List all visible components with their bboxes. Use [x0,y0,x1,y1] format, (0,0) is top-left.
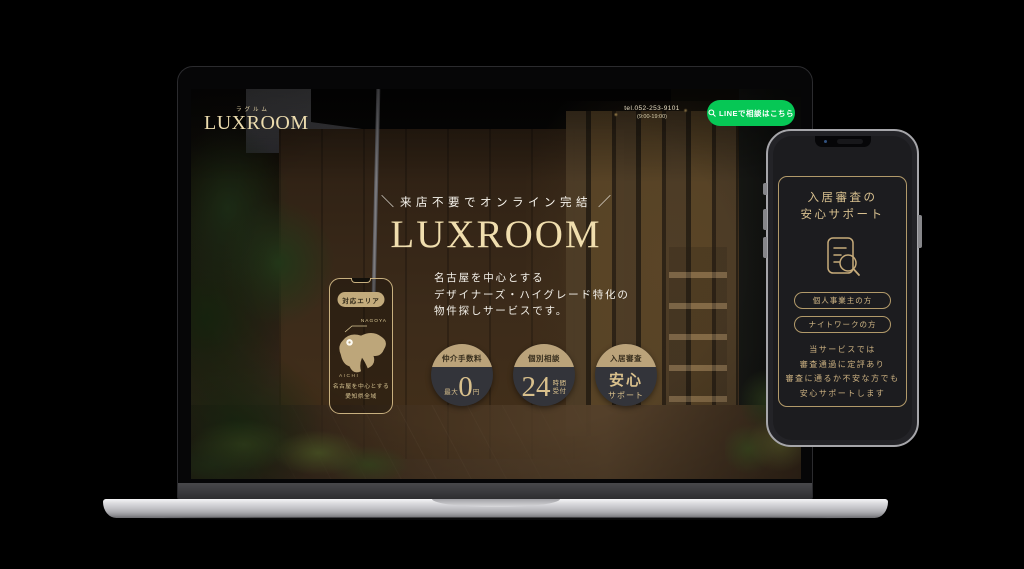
phone-screen: 入居審査の 安心サポート 個人事業主の方 ナイトワークの方 当サービスでは 審査… [773,136,912,440]
tel-hours: (9:00-19:00) [617,113,687,121]
screening-note: 当サービスでは 審査通過に定評あり 審査に通るか不安な方でも 安心サポートします [786,343,900,401]
aichi-map: NAGOYA [330,319,392,379]
area-caption-line: 愛知県全域 [330,393,392,403]
area-caption-line: 名古屋を中心とする [330,383,392,393]
site-logo[interactable]: ラグルム LUXROOM [204,105,302,134]
desc-line: デザイナーズ・ハイグレード特化の [434,288,630,305]
feature-sub: サポート [608,390,644,401]
desc-line: 物件探しサービスです。 [434,304,630,321]
feature-post: 円 [473,386,480,396]
aichi-label: AICHI [339,374,359,379]
phone-volume-up [763,209,767,230]
slash-right: ／ [598,194,611,209]
note-line: 安心サポートします [786,387,900,402]
website-viewport: ラグルム LUXROOM tel.052-253-9101 (9:00-19:0… [191,89,801,479]
screening-title-line: 安心サポート [801,207,885,224]
feature-big: 24 [522,372,551,402]
tel-block[interactable]: tel.052-253-9101 (9:00-19:00) [617,104,687,121]
logo-wordmark: LUXROOM [204,113,302,134]
sole-proprietor-button[interactable]: 個人事業主の方 [794,292,891,309]
laptop-screen: ラグルム LUXROOM tel.052-253-9101 (9:00-19:0… [177,66,813,500]
laptop-hinge [178,483,812,499]
desc-line: 名古屋を中心とする [434,271,630,288]
phone-power-button [918,215,922,248]
area-caption: 名古屋を中心とする 愛知県全域 [330,383,392,402]
phone-notch [815,136,871,147]
mini-phone-notch [351,278,371,283]
note-line: 当サービスでは [786,343,900,358]
hero-title: LUXROOM [191,215,801,255]
feature-cap: 個別相談 [513,344,575,367]
laptop-base [103,499,888,518]
slash-left: ＼ [381,194,394,209]
feature-screening: 入居審査 安心 サポート [595,344,657,406]
phone-mute-switch [763,183,767,195]
feature-stack-bottom: 受付 [553,388,567,396]
service-area-phone-illustration: 対応エリア NAGOYA AICHI 名古屋を中心とする 愛知県全域 [329,278,393,414]
area-badge: 対応エリア [338,292,385,307]
feature-cap: 入居審査 [595,344,657,367]
camera-icon [824,140,828,144]
hero-catchcopy: ＼来店不要でオンライン完結／ [191,191,801,210]
device-mockup-scene: ラグルム LUXROOM tel.052-253-9101 (9:00-19:0… [0,0,1024,569]
feature-cap: 仲介手数料 [431,344,493,367]
aichi-map-shape [333,328,391,376]
feature-pre: 最大 [444,386,458,396]
feature-badges: 仲介手数料 最大0円 個別相談 24 時間 受付 [431,344,657,406]
phone-volume-down [763,237,767,258]
line-consult-button[interactable]: LINEで相談はこちら [707,100,795,126]
feature-stack-top: 時間 [553,380,567,388]
hero-description: 名古屋を中心とする デザイナーズ・ハイグレード特化の 物件探しサービスです。 [434,271,630,321]
note-line: 審査に通るか不安な方でも [786,372,900,387]
speaker-slot [837,139,863,144]
document-search-icon [825,236,861,280]
tel-number: tel.052-253-9101 [617,104,687,113]
line-button-label: LINEで相談はこちら [719,108,794,119]
phone-mockup: 入居審査の 安心サポート 個人事業主の方 ナイトワークの方 当サービスでは 審査… [766,129,919,447]
laptop-thumb-scoop [432,499,560,507]
feature-big: 0 [458,372,473,402]
note-line: 審査通過に定評あり [786,358,900,373]
feature-consultation: 個別相談 24 時間 受付 [513,344,575,406]
night-work-button[interactable]: ナイトワークの方 [794,316,891,333]
search-icon [708,109,716,117]
screening-card-title: 入居審査の 安心サポート [801,190,885,224]
feature-brokerage-fee: 仲介手数料 最大0円 [431,344,493,406]
screening-support-card: 入居審査の 安心サポート 個人事業主の方 ナイトワークの方 当サービスでは 審査… [778,176,907,407]
feature-main: 安心 [609,373,643,389]
screening-title-line: 入居審査の [801,190,885,207]
catch-text: 来店不要でオンライン完結 [400,197,592,209]
